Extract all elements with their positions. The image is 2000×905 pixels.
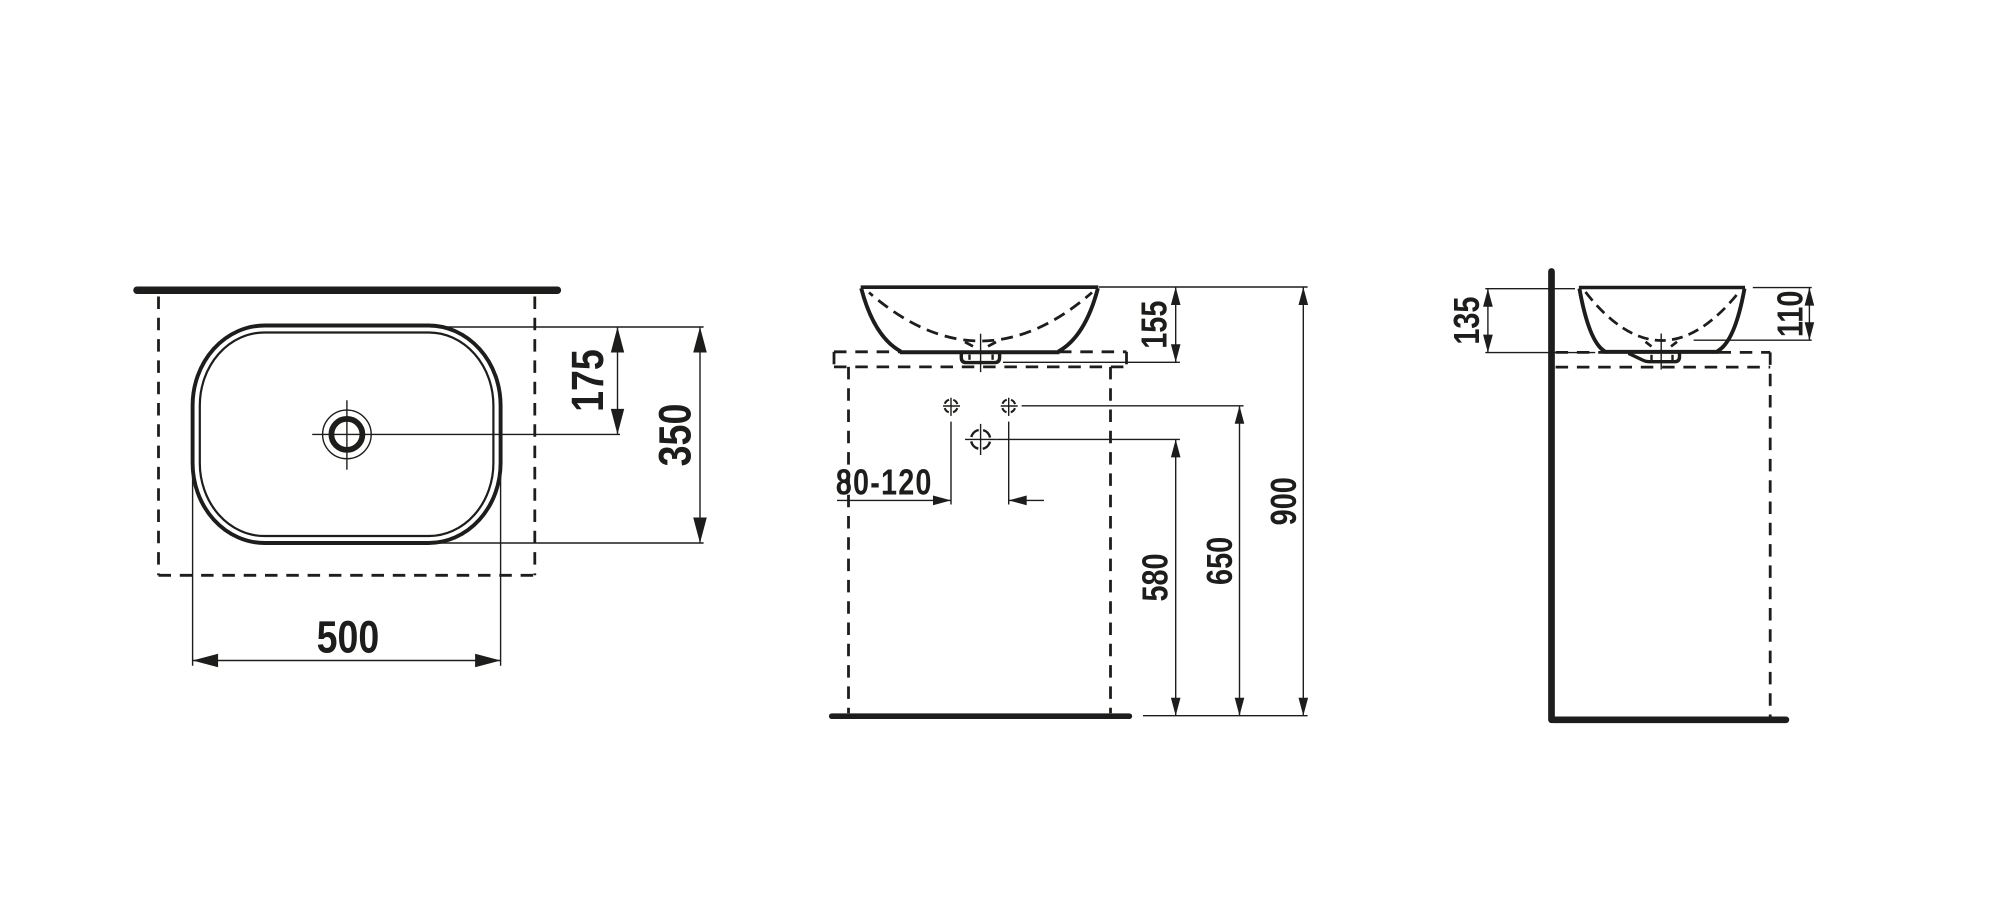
svg-text:135: 135 <box>1446 297 1487 345</box>
svg-text:80-120: 80-120 <box>836 461 933 502</box>
svg-text:500: 500 <box>317 611 380 662</box>
svg-text:155: 155 <box>1133 301 1174 349</box>
svg-text:110: 110 <box>1769 291 1810 338</box>
svg-text:900: 900 <box>1263 477 1304 525</box>
svg-text:350: 350 <box>649 404 700 467</box>
svg-text:175: 175 <box>562 349 613 412</box>
svg-text:580: 580 <box>1134 553 1175 601</box>
svg-text:650: 650 <box>1199 537 1240 585</box>
